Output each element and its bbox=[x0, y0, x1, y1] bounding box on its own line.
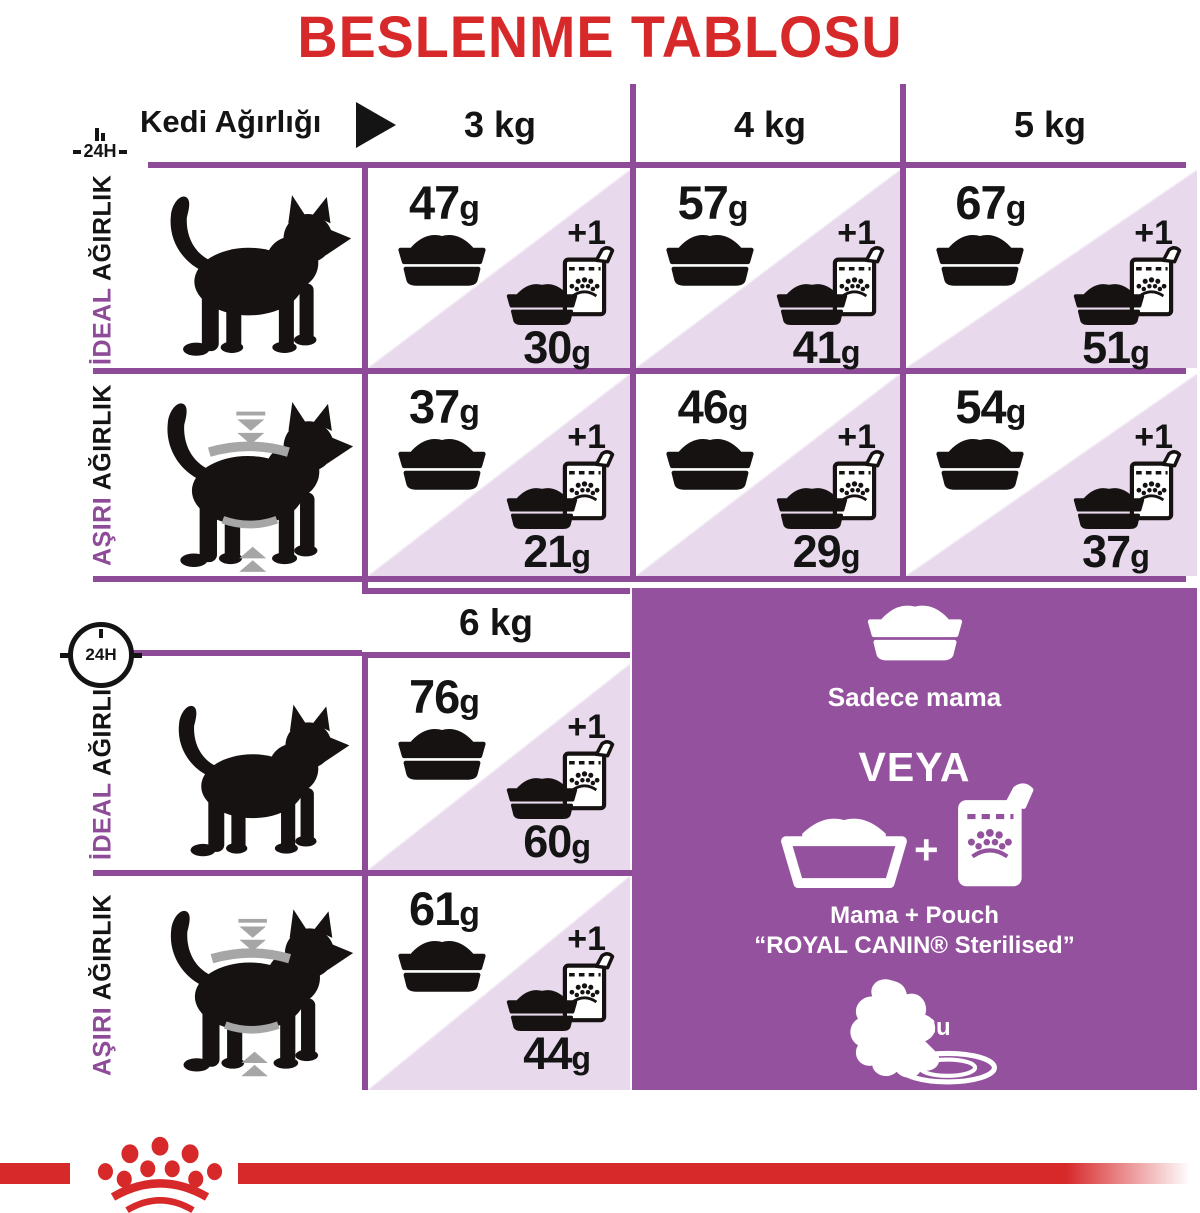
dry-amount: 67g bbox=[906, 175, 1075, 230]
feeding-cell-ideal-4kg: 57g +1 41g bbox=[636, 170, 900, 368]
row-label-ideal-weight-6kg: İDEAL AĞIRLIK bbox=[84, 660, 122, 870]
feeding-cell-over-5kg: 54g +1 37g bbox=[906, 374, 1197, 576]
red-bar-right bbox=[238, 1163, 1200, 1184]
food-bowl-icon bbox=[1067, 280, 1151, 326]
mix-amount: 44g bbox=[483, 1028, 630, 1080]
food-bowl-icon bbox=[500, 280, 584, 326]
mix-amount: 29g bbox=[752, 526, 900, 578]
grid-line-h3 bbox=[93, 576, 1186, 582]
red-bar-left bbox=[0, 1163, 70, 1184]
weight-column-5kg: 5 kg bbox=[990, 104, 1110, 146]
ideal-weight-cat-icon bbox=[148, 692, 352, 868]
dry-amount: 47g bbox=[368, 175, 520, 230]
row-label-ideal-weight: İDEAL AĞIRLIK bbox=[84, 172, 122, 368]
over-weight-cat-icon bbox=[134, 392, 356, 576]
food-bowl-icon bbox=[658, 230, 762, 287]
mix-amount: 41g bbox=[752, 322, 900, 374]
grid-line-h4 bbox=[120, 650, 364, 656]
grid-line-h1 bbox=[148, 162, 1186, 168]
ideal-weight-cat-icon bbox=[138, 185, 354, 365]
feeding-cell-ideal-5kg: 67g +1 51g bbox=[906, 170, 1197, 368]
dry-amount: 76g bbox=[368, 669, 520, 724]
feeding-chart-page: BESLENME TABLOSU 24H Kedi Ağırlığı 3 kg … bbox=[0, 0, 1200, 1213]
royal-canin-crown-logo bbox=[84, 1134, 236, 1213]
food-bowl-icon bbox=[500, 484, 584, 530]
mix-amount: 37g bbox=[1034, 526, 1197, 578]
feeding-cell-ideal-6kg: 76g +1 60g bbox=[368, 664, 630, 870]
row-label-over-weight-6kg: AŞIRI AĞIRLIK bbox=[84, 880, 122, 1090]
dry-amount: 54g bbox=[906, 379, 1075, 434]
clock-label: 24H bbox=[83, 141, 116, 162]
plus-label: + bbox=[914, 826, 939, 874]
or-label: VEYA bbox=[632, 744, 1197, 791]
dry-amount: 37g bbox=[368, 379, 520, 434]
food-bowl-icon bbox=[928, 230, 1032, 287]
food-bowl-icon bbox=[390, 230, 494, 287]
mix-amount: 60g bbox=[483, 816, 630, 868]
weight-column-3kg: 3 kg bbox=[440, 104, 560, 146]
food-bowl-icon bbox=[390, 434, 494, 491]
food-bowl-icon bbox=[928, 434, 1032, 491]
water-label: Su bbox=[920, 1014, 951, 1042]
food-bowl-icon bbox=[390, 936, 494, 993]
weight-column-6kg: 6 kg bbox=[362, 588, 630, 658]
feeding-cell-over-3kg: 37g +1 21g bbox=[368, 374, 630, 576]
feeding-cell-over-6kg: 61g +1 44g bbox=[368, 876, 630, 1090]
pouch-icon bbox=[954, 782, 1036, 890]
clock-24h-icon: 24H bbox=[68, 622, 134, 688]
right-arrow-icon bbox=[356, 102, 396, 148]
only-food-label: Sadece mama bbox=[632, 682, 1197, 713]
mix-amount: 30g bbox=[483, 322, 630, 374]
clock-24h-icon: 24H bbox=[66, 120, 134, 162]
weight-column-4kg: 4 kg bbox=[710, 104, 830, 146]
food-bowl-icon bbox=[500, 986, 584, 1032]
page-title: BESLENME TABLOSU bbox=[24, 4, 1176, 71]
food-bowl-icon bbox=[500, 774, 584, 820]
dry-amount: 61g bbox=[368, 881, 520, 936]
food-bowl-icon bbox=[658, 434, 762, 491]
mix-description-line1: Mama + Pouch bbox=[632, 902, 1197, 930]
promo-panel: Sadece mama VEYA + Mama + Pouch “ROYAL C… bbox=[632, 588, 1197, 1090]
water-splash-icon bbox=[826, 974, 1002, 1086]
dry-amount: 46g bbox=[636, 379, 789, 434]
food-bowl-outline-icon bbox=[770, 810, 918, 892]
food-bowl-icon bbox=[770, 280, 854, 326]
food-bowl-icon bbox=[1067, 484, 1151, 530]
food-bowl-icon bbox=[859, 600, 971, 662]
food-bowl-icon bbox=[770, 484, 854, 530]
row-label-over-weight: AŞIRI AĞIRLIK bbox=[84, 374, 122, 576]
cat-weight-header-label: Kedi Ağırlığı bbox=[140, 104, 330, 140]
clock-label: 24H bbox=[85, 645, 116, 665]
mix-amount: 51g bbox=[1034, 322, 1197, 374]
feeding-cell-over-4kg: 46g +1 29g bbox=[636, 374, 900, 576]
feeding-cell-ideal-3kg: 47g +1 30g bbox=[368, 170, 630, 368]
mix-amount: 21g bbox=[483, 526, 630, 578]
dry-amount: 57g bbox=[636, 175, 789, 230]
food-bowl-icon bbox=[390, 724, 494, 781]
brand-line: “ROYAL CANIN® Sterilised” bbox=[632, 932, 1197, 960]
over-weight-cat-icon bbox=[138, 896, 356, 1084]
